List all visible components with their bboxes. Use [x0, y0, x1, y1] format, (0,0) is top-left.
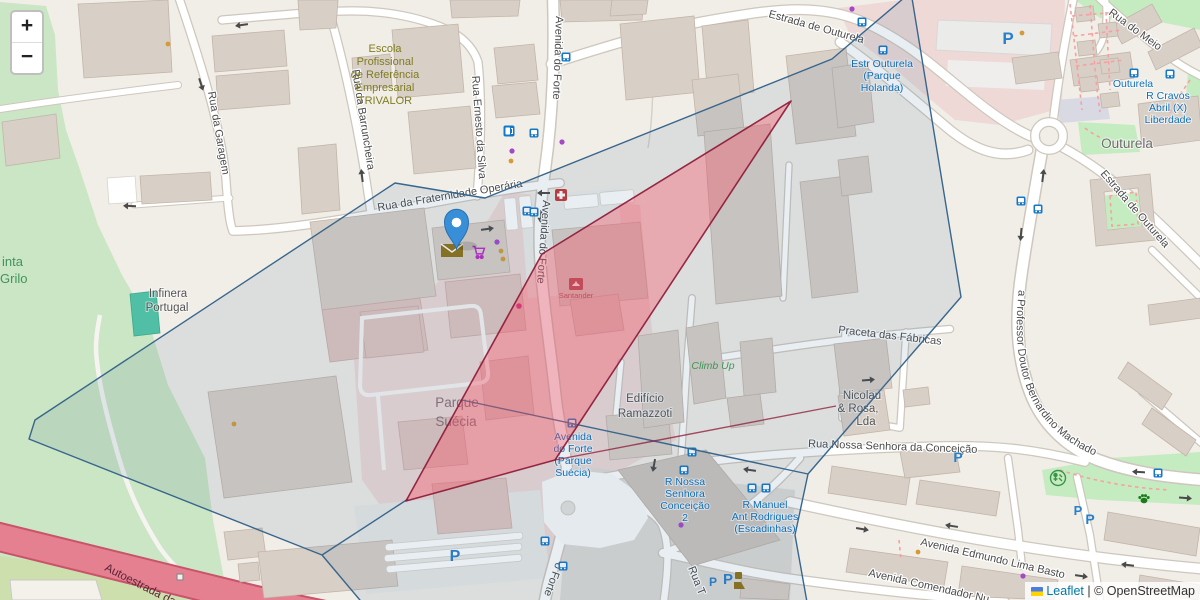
svg-text:Portugal: Portugal [146, 302, 189, 314]
svg-text:Lda: Lda [856, 416, 876, 428]
svg-text:P: P [1085, 511, 1094, 527]
svg-text:Empresarial: Empresarial [356, 82, 415, 94]
svg-text:Infinera: Infinera [149, 288, 188, 300]
svg-text:P: P [1002, 29, 1013, 48]
svg-text:P: P [953, 449, 962, 465]
svg-text:Outurela: Outurela [1101, 136, 1153, 151]
svg-text:Escola: Escola [368, 43, 402, 55]
svg-text:de Referência: de Referência [351, 69, 420, 81]
svg-text:Liberdade: Liberdade [1145, 114, 1192, 126]
svg-text:Profissional: Profissional [357, 56, 414, 68]
svg-text:Grilo: Grilo [0, 271, 27, 286]
svg-text:R Cravos: R Cravos [1146, 90, 1190, 102]
svg-text:TRIVALOR: TRIVALOR [358, 95, 412, 107]
svg-text:Abril (X): Abril (X) [1149, 102, 1187, 114]
svg-text:inta: inta [2, 254, 24, 269]
svg-text:P: P [1074, 503, 1083, 518]
svg-text:Outurela: Outurela [1113, 78, 1153, 90]
